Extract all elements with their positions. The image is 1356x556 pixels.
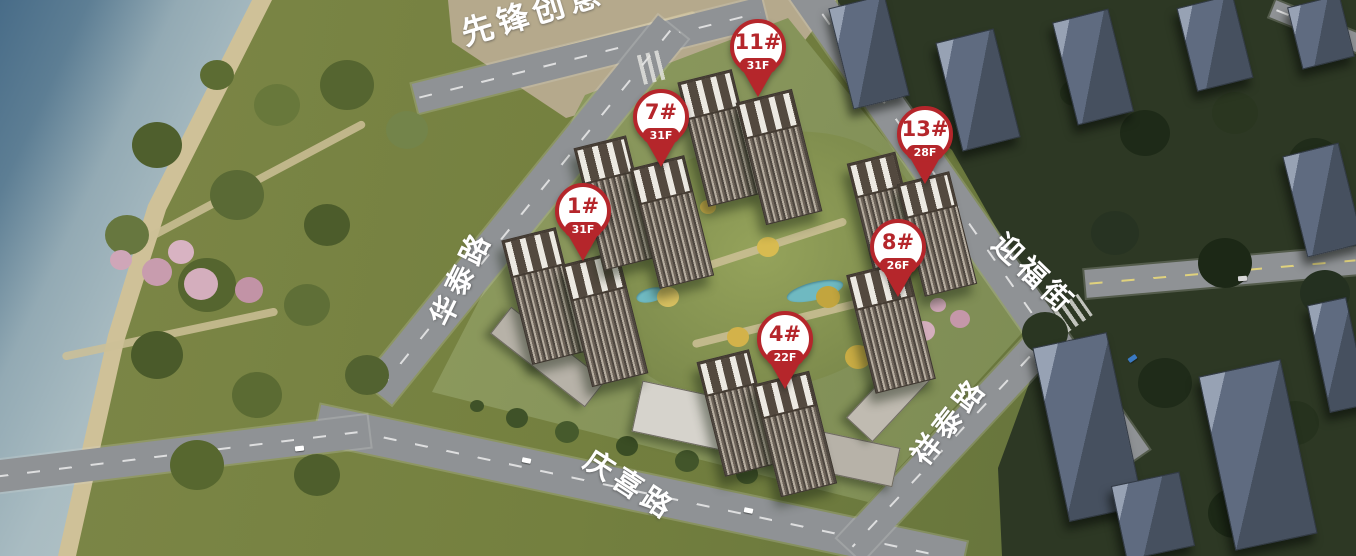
aerial-site-plan: 先锋创意 华泰路 迎福街 祥泰路 庆喜路 1# 31F 7# 31F 11# 3… [0, 0, 1356, 556]
blossom-trees [110, 250, 132, 270]
building-pin-13[interactable]: 13# 28F [897, 106, 953, 190]
building-pin-11[interactable]: 11# 31F [730, 19, 786, 103]
car [1238, 276, 1247, 282]
building-floors: 31F [565, 222, 602, 237]
building-floors: 26F [880, 258, 917, 273]
building-number: 7# [645, 102, 677, 123]
building-pin-7[interactable]: 7# 31F [633, 89, 689, 173]
building-floors: 28F [907, 145, 944, 160]
blossom-trees [930, 298, 946, 312]
building-pin-4[interactable]: 4# 22F [757, 311, 813, 395]
street-trees [470, 400, 484, 412]
building-number: 8# [882, 232, 914, 253]
building-pin-1[interactable]: 1# 31F [555, 183, 611, 267]
building-number: 4# [769, 324, 801, 345]
building-pin-8[interactable]: 8# 26F [870, 219, 926, 303]
park-trees [200, 60, 234, 90]
building-number: 1# [567, 196, 599, 217]
building-floors: 22F [767, 350, 804, 365]
car [295, 446, 304, 452]
building-number: 13# [902, 119, 949, 140]
building-floors: 31F [740, 58, 777, 73]
building-number: 11# [735, 32, 782, 53]
building-floors: 31F [643, 128, 680, 143]
